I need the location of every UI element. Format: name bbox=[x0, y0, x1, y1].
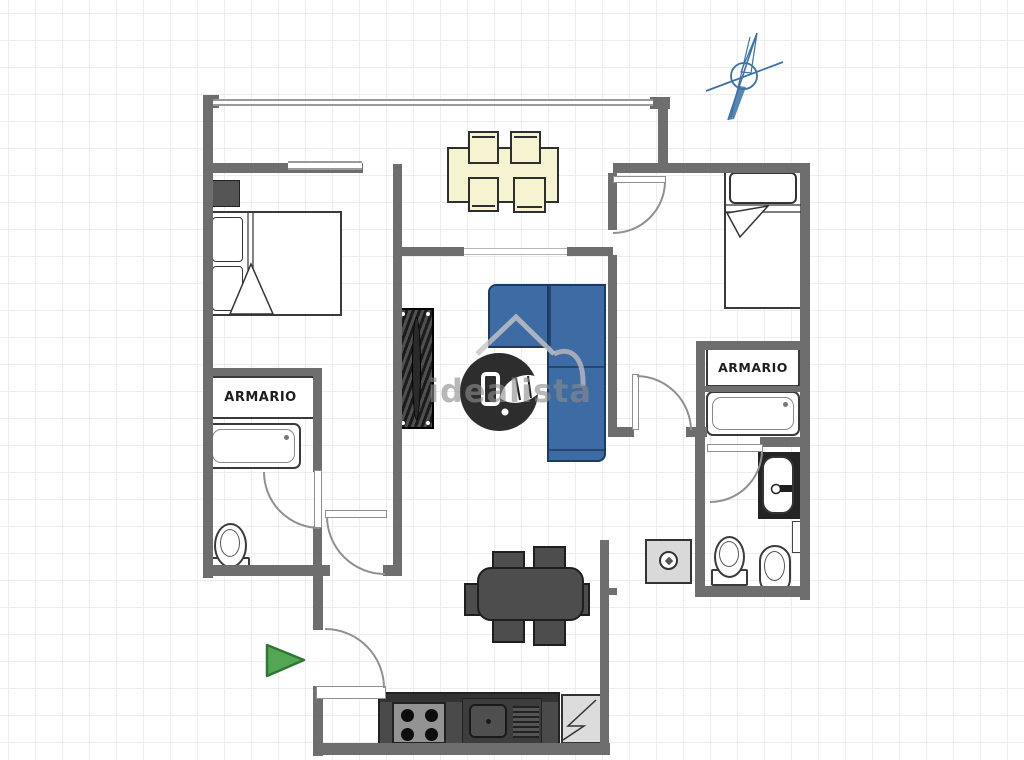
kitchen-sink bbox=[469, 704, 507, 738]
drainboard bbox=[513, 706, 539, 738]
door-arc bbox=[613, 182, 665, 233]
wall-bath2-door-stub bbox=[760, 437, 800, 447]
closet-right: ARMARIO bbox=[706, 347, 800, 387]
bathtub-basin bbox=[712, 397, 794, 430]
wall-bottom-left-seg bbox=[383, 565, 402, 576]
wall-bath1-top bbox=[203, 368, 322, 376]
wall-closet2-left bbox=[696, 348, 705, 437]
kitchen-sink-unit bbox=[462, 698, 542, 744]
burner bbox=[425, 728, 438, 741]
wall-bath1-right-upper bbox=[313, 368, 322, 472]
door-leaf bbox=[613, 176, 666, 183]
washing-machine bbox=[645, 539, 692, 584]
pillow bbox=[212, 266, 243, 311]
wall-kitchen-right bbox=[600, 540, 609, 755]
wall-bath2-top bbox=[696, 341, 800, 350]
bathtub-basin bbox=[212, 429, 295, 463]
watermark-text: idealista bbox=[330, 372, 690, 410]
floor-plan: ARMARIO bbox=[0, 0, 1024, 760]
door-leaf bbox=[314, 470, 322, 528]
door-arc bbox=[710, 451, 762, 502]
wash-basin bbox=[762, 456, 794, 514]
closet-right-label: ARMARIO bbox=[718, 360, 788, 375]
dining-table-bottom bbox=[477, 567, 584, 621]
wall-top-right-v bbox=[658, 97, 668, 167]
wall-bottom-left bbox=[203, 565, 330, 576]
bedroom1-window bbox=[288, 161, 362, 170]
toilet-right-seat bbox=[719, 541, 739, 567]
bidet-basin bbox=[764, 551, 785, 581]
door-arc bbox=[325, 629, 384, 688]
wall-laundry-left bbox=[695, 437, 705, 597]
chair bbox=[513, 177, 546, 213]
wall-hall-left-upper bbox=[313, 576, 323, 630]
wall-hall-stub-right bbox=[567, 247, 613, 256]
pillow bbox=[212, 217, 243, 262]
toilet-left-seat bbox=[220, 529, 240, 557]
wall-bedroom2-top bbox=[613, 163, 810, 173]
pillow bbox=[729, 172, 797, 204]
stove bbox=[392, 702, 446, 744]
north-compass-icon bbox=[706, 33, 783, 120]
drain-dot bbox=[783, 402, 788, 407]
wall-tick bbox=[605, 588, 617, 595]
drain-dot bbox=[284, 435, 289, 440]
entrance-door-leaf bbox=[316, 686, 386, 699]
wall-hall-stub-left bbox=[398, 247, 464, 256]
open-passage-beam bbox=[464, 248, 567, 255]
closet-left: ARMARIO bbox=[206, 376, 315, 419]
burner bbox=[401, 728, 414, 741]
dishwasher bbox=[561, 694, 603, 744]
wall-right-exterior bbox=[800, 163, 810, 600]
bathtub-right bbox=[706, 391, 800, 436]
wall-mid-vertical bbox=[393, 164, 402, 576]
wall-sofa-stub bbox=[612, 427, 634, 437]
wall-bath2-bottom bbox=[695, 586, 810, 597]
burner bbox=[401, 709, 414, 722]
wall-closet2-divider bbox=[696, 386, 800, 392]
wall-bottom-exterior bbox=[313, 743, 610, 755]
closet-left-label: ARMARIO bbox=[224, 390, 296, 405]
chair bbox=[468, 177, 499, 212]
chair bbox=[468, 131, 499, 164]
door-leaf bbox=[707, 444, 763, 452]
sideboard bbox=[397, 308, 434, 429]
door-arc bbox=[264, 472, 320, 528]
bathtub-left bbox=[206, 423, 301, 469]
entrance-arrow-icon bbox=[267, 645, 304, 676]
door-leaf bbox=[325, 510, 387, 518]
chair bbox=[510, 131, 541, 164]
terrace-window-line bbox=[213, 99, 653, 106]
burner bbox=[425, 709, 438, 722]
door-arc bbox=[327, 517, 385, 574]
